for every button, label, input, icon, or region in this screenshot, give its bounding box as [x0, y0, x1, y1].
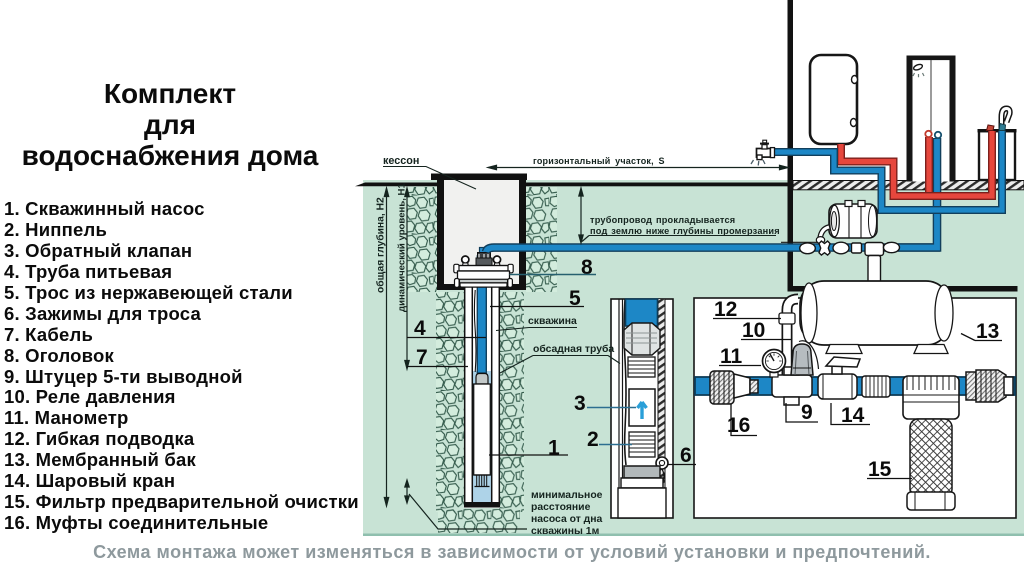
svg-text:общая глубина, Н2: общая глубина, Н2 — [375, 197, 387, 293]
svg-text:кессон: кессон — [383, 155, 419, 167]
svg-text:4: 4 — [414, 317, 426, 340]
svg-text:7: 7 — [416, 346, 428, 369]
svg-text:под землю ниже глубины промерз: под землю ниже глубины промерзания — [590, 226, 780, 236]
svg-text:14: 14 — [841, 404, 865, 427]
svg-text:скважина: скважина — [528, 316, 577, 327]
svg-text:горизонтальный участок, S: горизонтальный участок, S — [533, 156, 665, 166]
svg-text:трубопровод прокладывается: трубопровод прокладывается — [590, 215, 735, 225]
svg-text:15: 15 — [868, 458, 892, 481]
svg-text:13: 13 — [976, 320, 999, 343]
svg-text:12: 12 — [714, 298, 737, 321]
svg-text:9: 9 — [801, 401, 813, 424]
svg-text:8: 8 — [581, 256, 593, 279]
svg-text:6: 6 — [680, 444, 692, 467]
svg-text:обсадная труба: обсадная труба — [533, 343, 614, 355]
svg-text:1: 1 — [548, 437, 560, 460]
svg-text:скважины 1м: скважины 1м — [531, 526, 599, 537]
svg-text:2: 2 — [587, 428, 599, 451]
svg-text:минимальное: минимальное — [531, 490, 603, 501]
svg-text:расстояние: расстояние — [531, 502, 591, 513]
svg-text:11: 11 — [720, 345, 743, 368]
svg-text:насоса от дна: насоса от дна — [531, 514, 603, 525]
svg-text:динамический уровень, Н1: динамический уровень, Н1 — [397, 183, 408, 312]
svg-text:10: 10 — [742, 319, 765, 342]
svg-text:3: 3 — [574, 392, 586, 415]
